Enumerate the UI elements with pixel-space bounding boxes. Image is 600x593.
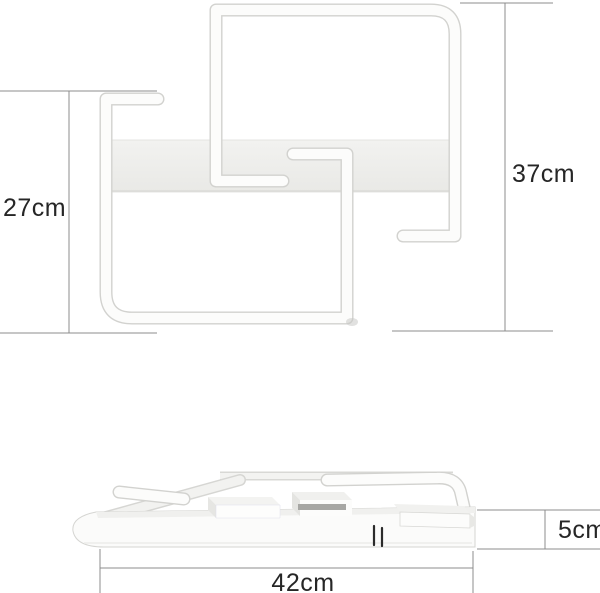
front-view (106, 10, 455, 326)
dim-27cm-label: 27cm (3, 194, 66, 222)
diagram-canvas: 27cm 37cm (0, 0, 600, 593)
upper-square-tube (216, 10, 455, 236)
raised-hook-bar (119, 492, 184, 499)
dimension-42cm: 42cm (100, 549, 473, 593)
dim-37cm-label: 37cm (512, 160, 575, 188)
raised-ring-front-bar (394, 504, 474, 528)
lower-square-tube (106, 99, 358, 326)
side-view (73, 476, 475, 547)
raised-middle-box (208, 497, 280, 518)
dimension-27cm: 27cm (0, 91, 157, 333)
dim-42cm-label: 42cm (271, 569, 334, 593)
product-dimension-diagram: 27cm 37cm (0, 0, 600, 593)
corner-shadow (346, 318, 358, 326)
raised-right-box (292, 492, 352, 516)
dimension-5cm: 5cm (477, 510, 600, 549)
dim-5cm-label: 5cm (558, 516, 600, 544)
